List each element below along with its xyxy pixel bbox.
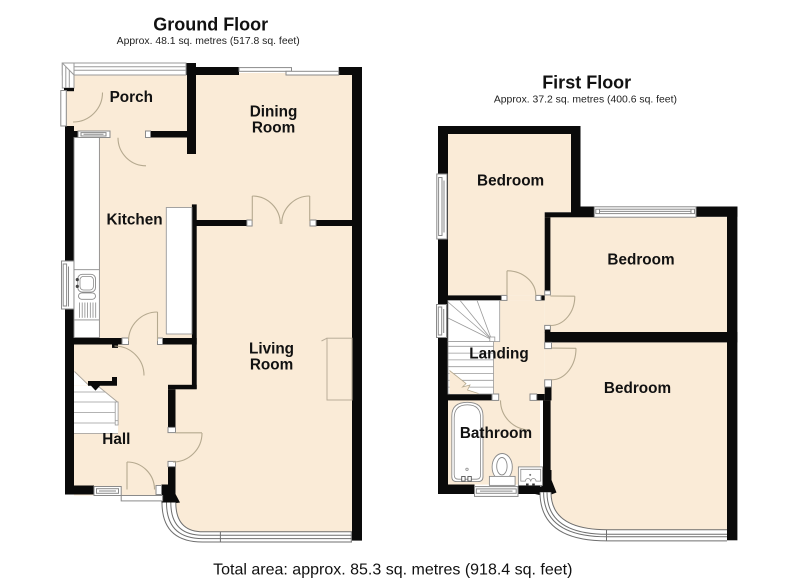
svg-text:Dining: Dining <box>250 104 298 121</box>
svg-text:Porch: Porch <box>110 89 153 106</box>
svg-text:Approx. 37.2 sq. metres (400.6: Approx. 37.2 sq. metres (400.6 sq. feet) <box>494 94 677 105</box>
svg-text:Bedroom: Bedroom <box>604 380 671 397</box>
svg-text:Kitchen: Kitchen <box>106 212 162 229</box>
svg-text:Living: Living <box>249 341 294 358</box>
svg-text:Bathroom: Bathroom <box>460 425 532 442</box>
svg-text:Ground Floor: Ground Floor <box>153 14 268 34</box>
svg-text:Room: Room <box>250 356 293 373</box>
svg-text:Room: Room <box>252 119 295 136</box>
svg-text:First Floor: First Floor <box>542 72 631 92</box>
svg-text:Total area: approx. 85.3 sq. m: Total area: approx. 85.3 sq. metres (918… <box>213 562 572 579</box>
svg-text:Hall: Hall <box>102 431 130 448</box>
svg-text:Landing: Landing <box>469 346 528 363</box>
svg-text:Bedroom: Bedroom <box>607 252 674 269</box>
svg-text:Approx. 48.1 sq. metres (517.8: Approx. 48.1 sq. metres (517.8 sq. feet) <box>117 36 300 47</box>
svg-text:Bedroom: Bedroom <box>477 173 544 190</box>
